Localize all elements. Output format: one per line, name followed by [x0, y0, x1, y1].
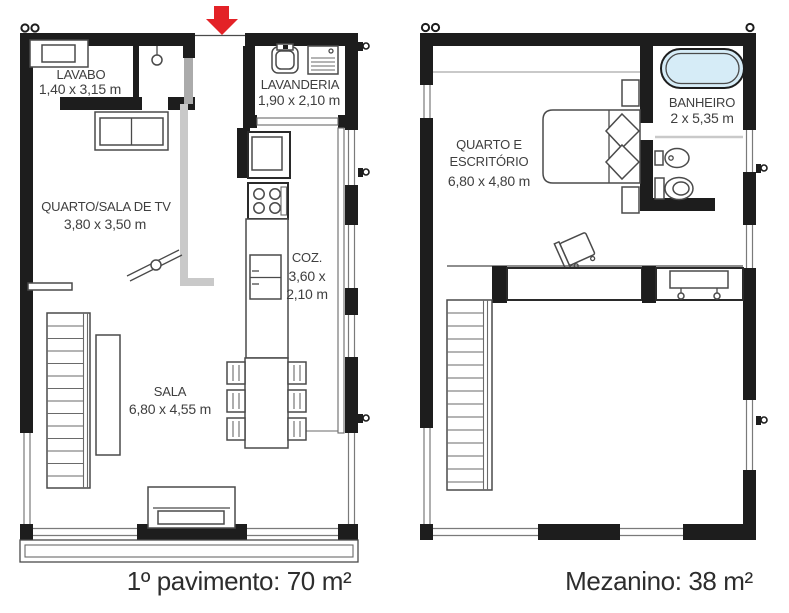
balcony	[20, 540, 358, 562]
handle-icon	[761, 417, 767, 423]
shower-drain-icon	[152, 55, 162, 65]
label-quarto-escritorio-1: QUARTO E	[456, 137, 522, 152]
entrance-arrow-icon	[206, 6, 238, 35]
label-lavabo: LAVABO	[57, 67, 106, 82]
label-quarto-sala-tv: QUARTO/SALA DE TV	[41, 199, 171, 214]
handle-icon	[363, 169, 369, 175]
hinge-icon	[21, 24, 28, 31]
hinge-icon	[31, 24, 38, 31]
low-bench	[28, 283, 72, 290]
handle-icon	[363, 43, 369, 49]
hinge-icon	[432, 24, 439, 31]
label-cozinha: COZ.	[292, 250, 322, 265]
handle-icon	[363, 415, 369, 421]
stool-icon	[714, 293, 720, 299]
kitchen-counter-edge	[338, 128, 344, 433]
hinge-icon	[422, 24, 429, 31]
nightstand	[622, 187, 639, 213]
floor-plan-page: LAVABO 1,40 x 3,15 m QUARTO/SALA DE TV 3…	[0, 0, 789, 613]
desk-icon	[670, 271, 728, 288]
stove-icon	[248, 183, 288, 219]
label-quarto-escritorio-2: ESCRITÓRIO	[450, 154, 529, 169]
caption-mezzanine: Mezanino: 38 m²	[565, 566, 753, 596]
entrance	[195, 6, 245, 36]
dining-set	[227, 358, 306, 448]
label-lavabo-dims: 1,40 x 3,15 m	[39, 81, 121, 97]
label-lavanderia: LAVANDERIA	[261, 77, 340, 92]
floor-plans-drawing: LAVABO 1,40 x 3,15 m QUARTO/SALA DE TV 3…	[0, 0, 789, 613]
kitchen-fixtures	[246, 132, 290, 358]
label-quarto-escritorio-dims: 6,80 x 4,80 m	[448, 173, 530, 189]
nightstand	[622, 80, 639, 106]
dining-table	[245, 358, 288, 448]
living-room-sofa	[148, 487, 235, 528]
hinge-icon	[746, 24, 753, 31]
label-sala-dims: 6,80 x 4,55 m	[129, 401, 211, 417]
label-banheiro-dims: 2 x 5,35 m	[670, 110, 733, 126]
toilet-icon	[655, 178, 664, 199]
label-cozinha-dims1: 3,60 x	[289, 268, 326, 284]
laundry-fixtures	[272, 44, 338, 74]
label-lavanderia-dims: 1,90 x 2,10 m	[258, 92, 340, 108]
label-banheiro: BANHEIRO	[669, 95, 735, 110]
tv-stand-icon	[151, 260, 161, 270]
laundry-sliding-door	[257, 118, 338, 125]
stairs-first-floor	[47, 313, 90, 488]
tv-room-half-wall	[180, 104, 188, 286]
stool-icon	[678, 293, 684, 299]
lavabo-door-panel	[184, 58, 193, 104]
label-sala: SALA	[154, 384, 187, 399]
sideboard-shelf	[96, 335, 120, 455]
stairs-mezzanine	[447, 300, 492, 490]
label-quarto-sala-tv-dims: 3,80 x 3,50 m	[64, 216, 146, 232]
caption-first-floor: 1º pavimento: 70 m²	[127, 566, 352, 596]
handle-icon	[761, 165, 767, 171]
railing-counter	[507, 268, 642, 300]
label-cozinha-dims2: 2,10 m	[286, 286, 328, 302]
mezzanine-plan: QUARTO E ESCRITÓRIO 6,80 x 4,80 m BANHEI…	[420, 24, 767, 596]
lavabo-sink-icon	[42, 45, 75, 62]
bidet-icon	[655, 151, 663, 165]
mezzanine-railing	[447, 266, 743, 303]
first-floor-plan: LAVABO 1,40 x 3,15 m QUARTO/SALA DE TV 3…	[20, 6, 369, 596]
